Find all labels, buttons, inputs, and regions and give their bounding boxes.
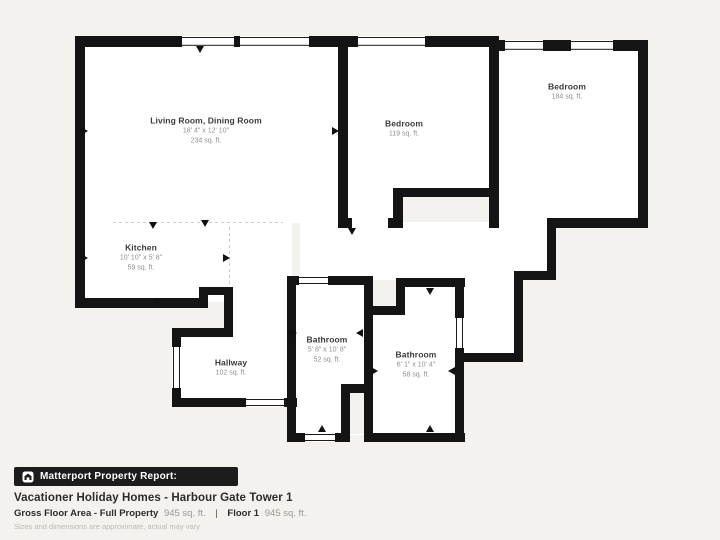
stats-separator: | [215,508,217,519]
floor-area-stats: Gross Floor Area - Full Property 945 sq.… [14,508,706,519]
report-bar-label: Matterport Property Report: [40,471,177,482]
disclaimer-text: Sizes and dimensions are approximate, ac… [14,522,706,531]
gross-floor-area-value: 945 sq. ft. [164,508,206,519]
room-floors [80,43,643,435]
floor-plan: Living Room, Dining Room18' 4" x 12' 10"… [0,0,720,462]
property-title: Vacationer Holiday Homes - Harbour Gate … [14,492,706,504]
matterport-floorplan-screen: Living Room, Dining Room18' 4" x 12' 10"… [0,0,720,540]
floor-plan-svg [0,0,720,462]
report-footer: Matterport Property Report: Vacationer H… [14,467,706,531]
gross-floor-area-label: Gross Floor Area - Full Property [14,508,158,519]
floor-value: 945 sq. ft. [265,508,307,519]
report-bar: Matterport Property Report: [14,467,238,486]
floor-label: Floor 1 [227,508,259,519]
matterport-house-icon [22,471,34,483]
